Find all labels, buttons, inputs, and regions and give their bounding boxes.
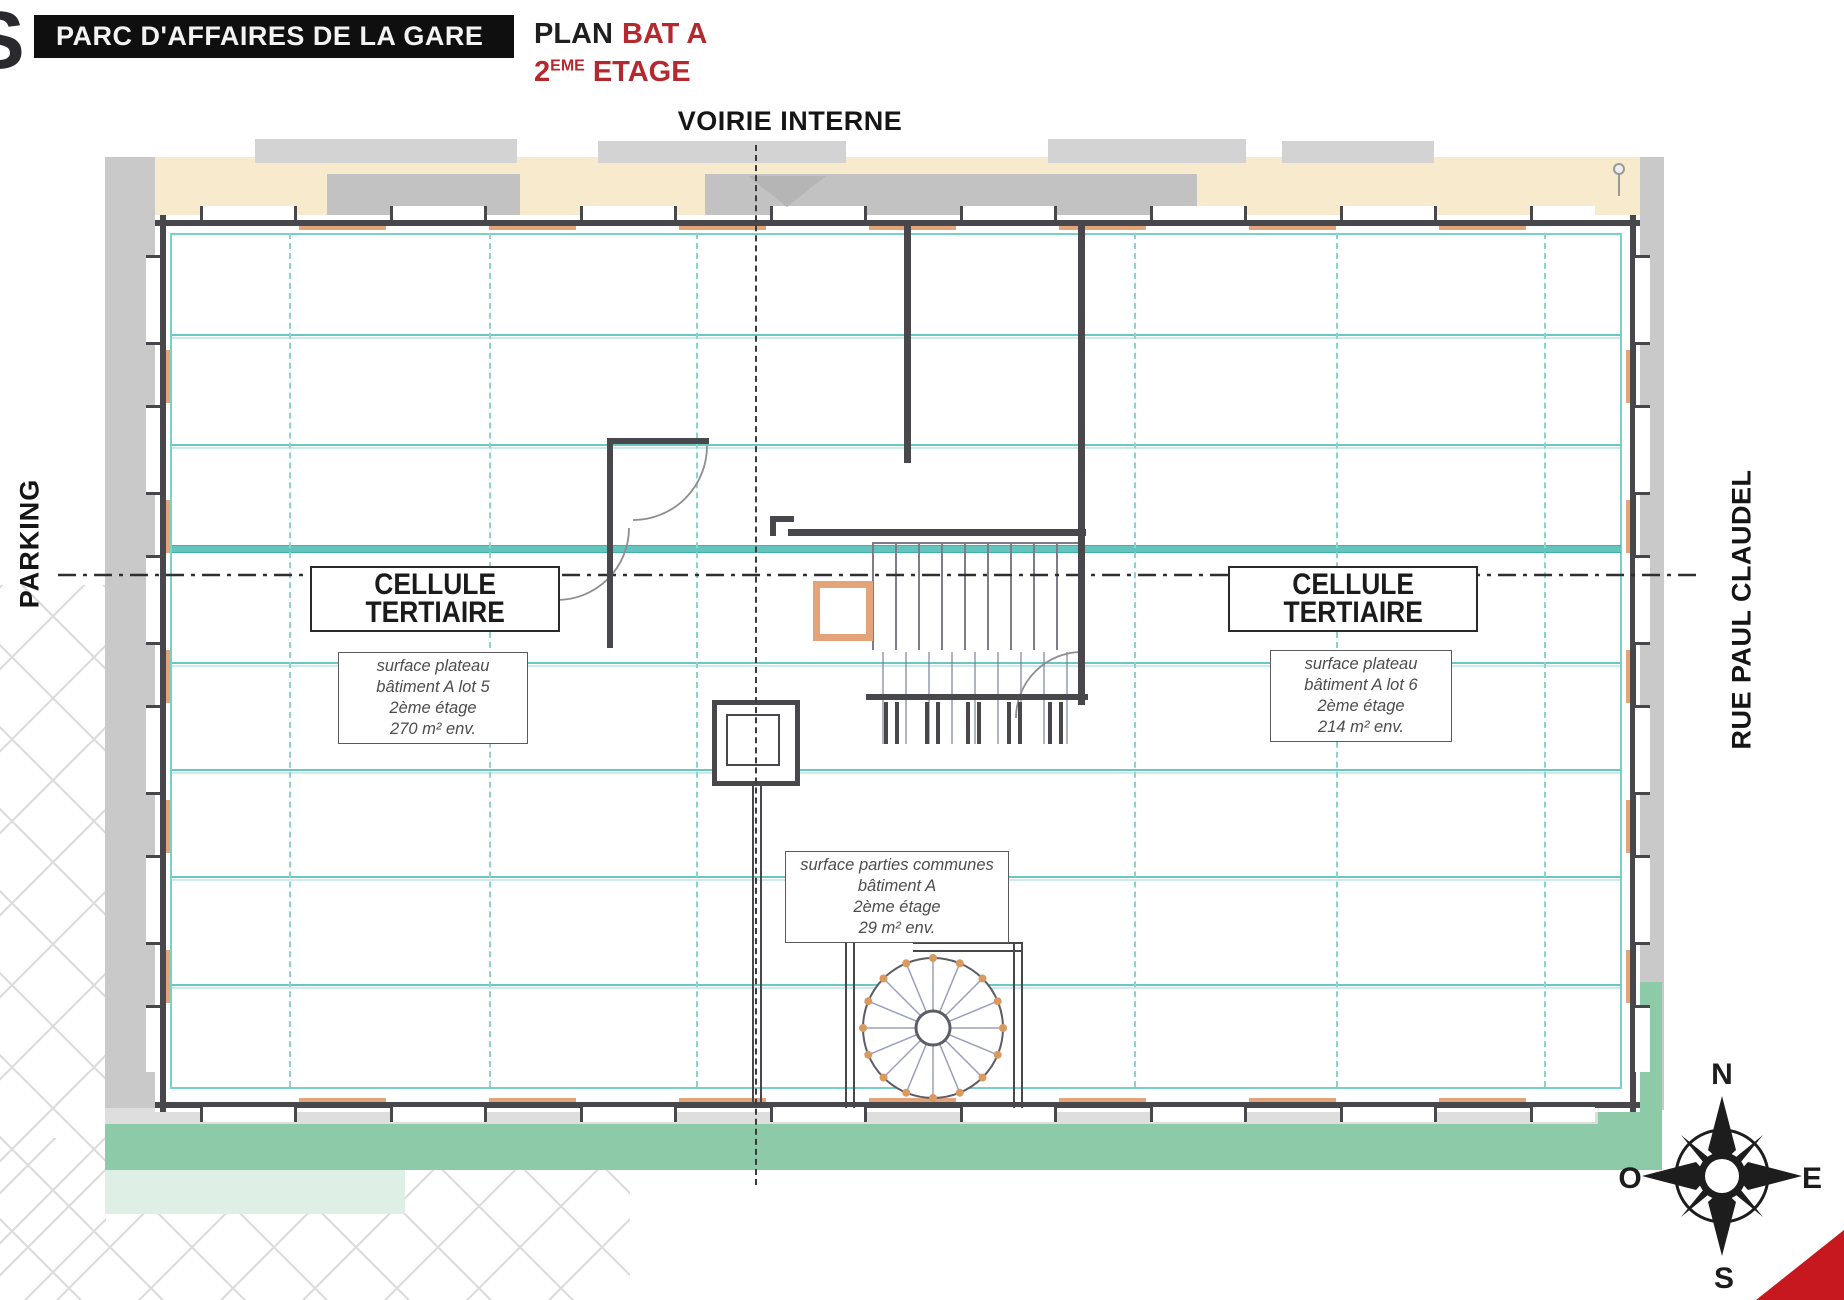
survey-marker: [1614, 164, 1624, 174]
core-corridor-wall: [788, 529, 1086, 536]
plan-overlay-graphics: N E S O: [0, 0, 1844, 1300]
stair-treads: [884, 702, 1088, 744]
note-line: bâtiment A lot 5: [376, 677, 489, 698]
note-line: 29 m² env.: [859, 918, 936, 939]
left-cell-surface-note: surface plateau bâtiment A lot 5 2ème ét…: [338, 652, 528, 744]
compass-west-label: O: [1618, 1162, 1641, 1195]
left-cell-label-box: CELLULE TERTIAIRE: [310, 566, 560, 632]
project-title-bar: PARC D'AFFAIRES DE LA GARE: [34, 15, 514, 58]
note-line: 2ème étage: [389, 698, 476, 719]
compass-east-label: E: [1802, 1162, 1822, 1195]
plan-word: PLAN: [534, 18, 613, 50]
street-label-right: RUE PAUL CLAUDEL: [1727, 440, 1758, 780]
core-wall: [770, 516, 776, 536]
entrance-arrow: [748, 176, 826, 207]
core-wall-right: [1078, 221, 1085, 705]
note-line: 270 m² env.: [390, 719, 476, 740]
corner-logo-glyph: S: [0, 0, 25, 88]
commons-surface-note: surface parties communes bâtiment A 2ème…: [785, 851, 1009, 943]
cell-label-line: CELLULE: [1292, 571, 1414, 599]
spiral-staircase: [859, 954, 1007, 1102]
street-label-left: PARKING: [15, 452, 46, 636]
stair-landing-edge: [866, 694, 1088, 700]
right-cell-label-box: CELLULE TERTIAIRE: [1228, 566, 1478, 632]
building-label: BAT A: [622, 18, 707, 50]
elevator-shaft: [813, 581, 873, 641]
core-wall-left: [904, 221, 911, 463]
note-line: 214 m² env.: [1318, 717, 1404, 738]
floor-plan-page: S PARC D'AFFAIRES DE LA GARE PLANBAT A 2…: [0, 0, 1844, 1300]
plan-title: PLANBAT A: [534, 18, 707, 51]
floor-ordinal: EME: [550, 57, 585, 74]
core-room-wall: [607, 438, 709, 444]
note-line: bâtiment A: [858, 876, 936, 897]
cell-label-line: TERTIAIRE: [1283, 599, 1422, 627]
note-line: 2ème étage: [1317, 696, 1404, 717]
axis-line-vertical: [755, 145, 757, 1185]
floor-word: ETAGE: [593, 56, 691, 88]
corner-red-triangle: [1756, 1230, 1844, 1300]
note-line: surface plateau: [377, 656, 490, 677]
core-room-wall: [607, 438, 613, 648]
shaft-wall: [1013, 942, 1023, 1108]
note-line: surface parties communes: [800, 855, 994, 876]
compass-rose: N E S O: [1618, 1058, 1822, 1295]
note-line: 2ème étage: [853, 897, 940, 918]
compass-north-label: N: [1711, 1058, 1733, 1091]
floor-number: 2: [534, 56, 550, 88]
shaft-wall: [913, 942, 1023, 952]
floor-title: 2EMEETAGE: [534, 56, 691, 89]
cell-label-line: TERTIAIRE: [365, 599, 504, 627]
right-cell-surface-note: surface plateau bâtiment A lot 6 2ème ét…: [1270, 650, 1452, 742]
project-title: PARC D'AFFAIRES DE LA GARE: [56, 21, 483, 52]
shaft-wall: [752, 782, 762, 1108]
technical-room-inner: [726, 714, 780, 766]
note-line: surface plateau: [1305, 654, 1418, 675]
compass-south-label: S: [1714, 1262, 1734, 1295]
cell-label-line: CELLULE: [374, 571, 496, 599]
note-line: bâtiment A lot 6: [1304, 675, 1417, 696]
street-label-top: VOIRIE INTERNE: [620, 106, 960, 137]
